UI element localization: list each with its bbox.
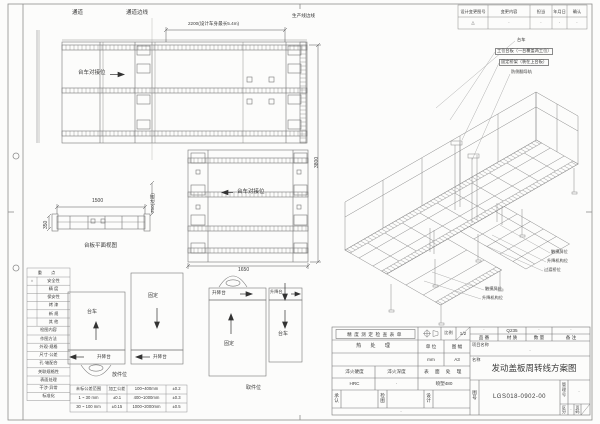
name-label: 名称 <box>472 358 480 363</box>
aisle-label: 通道 <box>72 10 83 16</box>
class-value: · <box>568 408 574 413</box>
tol-r2c2: ±0.1 <box>107 396 127 401</box>
dock-position-label-1: 台车对接位 <box>78 70 106 76</box>
part-no-label: 品 番 <box>470 335 498 340</box>
check-row-related-spec: 关联规格性 <box>27 370 70 375</box>
check-row-security: 保安性 <box>37 295 70 300</box>
mgmt-no-value: · <box>568 389 590 394</box>
check-row-surface: 表面处理 <box>27 378 70 383</box>
dimension-lines <box>47 27 321 269</box>
tol-r2c1: 1 ~ 30 mm <box>70 396 107 401</box>
material-label: 材 质 <box>498 335 526 340</box>
check-row-paint: 烤 漆 <box>37 303 70 308</box>
schematic-d-main-label: 台车 <box>278 332 288 338</box>
check-mark-1: ○ <box>27 279 37 284</box>
material-value: Q235 <box>498 328 526 333</box>
check-row-appearance: 外观·规格 <box>27 345 70 350</box>
callout-trolley: 台车 <box>517 38 525 43</box>
drawing-no-value: LGS018-0902-00 <box>480 394 559 401</box>
schematic-c-main-label: 固定 <box>224 342 234 348</box>
aisle-edge-label: 通道边线 <box>126 10 148 16</box>
revision-header-3: 担当 <box>530 10 552 15</box>
qty-label: 数 量 <box>526 335 552 340</box>
review-label: 检图 <box>380 393 386 404</box>
check-row-other: 其 他 <box>37 320 70 325</box>
revision-value-1: △ <box>458 21 488 26</box>
project-name-value: · <box>470 348 590 353</box>
approve-label: 承认 <box>334 393 340 404</box>
dim-750-label: 750(过道) <box>150 193 155 213</box>
revision-value-2: · <box>488 21 530 26</box>
tol-r2c3: 400~1000mm <box>127 396 166 401</box>
callout-touchscreen-2: 触摸屏位 <box>485 287 502 292</box>
drawing-no-label: 图号 <box>472 390 478 401</box>
revision-header-5: 确认 <box>567 10 587 15</box>
unit-value: mm <box>419 357 443 362</box>
station-left-label: 放件位 <box>112 373 127 379</box>
page-label: 页码 <box>575 406 580 416</box>
part-no-value: · <box>470 328 498 333</box>
callout-station-plate: 工位台板（一台覆盖两工位） <box>495 48 553 55</box>
check-row-new: 新 规 <box>37 312 70 317</box>
schematic-a-strip-label: 升降台 <box>97 354 111 359</box>
quench-hardness-value: HRC <box>334 381 375 386</box>
schematic-d-strip-label: 升降台 <box>270 290 283 295</box>
class-label: 区分 <box>562 406 567 416</box>
quench-hardness-label: 淬火硬度 <box>334 369 375 374</box>
check-row-hole-fit: 孔·轴配合 <box>27 361 70 366</box>
dim-1650-label: 1650 <box>238 268 249 274</box>
footer-value: · <box>332 409 470 414</box>
drawing-title: 发动盖板周转线方案图 <box>479 364 589 373</box>
revision-value-3: · <box>530 21 552 26</box>
check-sheet-label: 精度测定检查表单 <box>337 332 414 337</box>
tol-r3c3: 1000~2000mm <box>127 405 166 410</box>
sheet-size-label: 图 幅 <box>445 344 469 349</box>
remark-label: 备 注 <box>552 335 590 340</box>
dim-2200-label: 2200(设计车身最长5.4m) <box>188 21 239 26</box>
schematic-c-strip-label: 升降台 <box>212 290 226 295</box>
quench-depth-label: 淬火深度 <box>376 369 417 374</box>
dock-position-label-2: 台车对接位 <box>237 189 265 195</box>
scale-label: 比例 <box>441 331 456 336</box>
tol-r3c4: ±0.5 <box>166 405 187 410</box>
tol-r1c1: 未标公差范围 <box>70 387 107 392</box>
revision-header-4: 年月日 <box>552 10 567 15</box>
callout-fixed-bridge: 固定桥架（装在上台板） <box>499 59 549 66</box>
plan-view-top <box>37 18 307 160</box>
quench-depth-value: · <box>376 381 417 386</box>
revision-value-5: · <box>567 21 587 26</box>
dim-350-label: 350 <box>44 221 50 229</box>
iso-view <box>345 41 600 325</box>
callout-touchscreen-1: 触摸屏位 <box>551 250 568 255</box>
prod-edge-label: 生产线边线 <box>292 13 315 18</box>
sheet-size-value: A3 <box>445 357 469 362</box>
check-row-interference: 干涉·异常 <box>27 386 70 391</box>
tol-r3c1: 30 ~ 100 mm <box>70 405 107 410</box>
dim-3800-label: 3800 <box>315 157 321 168</box>
callout-transfer-bridge: 过渡桥位 <box>544 268 561 273</box>
callout-lift-mechanism-1: 升降机构位 <box>547 259 568 264</box>
tol-r1c4: ±0.2 <box>166 387 187 392</box>
revision-header-2: 变更内容 <box>488 10 530 15</box>
dim-1500-label: 1500 <box>92 199 103 205</box>
check-row-drawing-method: 作图方法 <box>27 337 70 342</box>
qty-value: · <box>526 328 552 333</box>
drawing-sheet: 通道 通道边线 2200(设计车身最长5.4m) 生产线边线 台车对接位 台车对… <box>0 0 600 424</box>
remark-value: · <box>552 328 590 333</box>
project-name-label: 项目名称 <box>472 343 489 348</box>
surface-treatment-label: 表 面 处 理 <box>419 369 469 374</box>
mgmt-no-label: 管理号 <box>562 383 567 397</box>
schematic-a-main-label: 台车 <box>87 310 97 316</box>
revision-header-1: 设计变更图号 <box>458 10 488 15</box>
schematic-b-main-label: 固定 <box>148 294 158 300</box>
check-header-2: 检图内容 <box>27 328 70 333</box>
check-row-precision: 精 度 <box>37 287 70 292</box>
check-row-standardization: 标准化 <box>27 394 70 399</box>
projection-symbol-icon <box>423 330 438 338</box>
check-header-1: 重 点 <box>27 271 70 276</box>
side-view-caption: 台板平面视图 <box>84 243 117 249</box>
surface-treatment-value: 喷塑480 <box>419 381 469 386</box>
plan-view-corner <box>188 150 308 262</box>
platform-side-view <box>52 214 150 231</box>
callout-lift-mechanism-2: 升降机构位 <box>482 296 503 301</box>
station-right-label: 取件位 <box>246 386 261 392</box>
unit-label: 单 位 <box>419 344 443 349</box>
tol-r2c4: ±0.3 <box>166 396 187 401</box>
design-label: 设计 <box>426 393 432 404</box>
heat-treatment-label: 热 处 理 <box>340 344 410 350</box>
check-row-safety: 安全性 <box>37 279 70 284</box>
schematic-b-strip-label: 升降台 <box>153 354 167 359</box>
tol-r1c3: 100~400mm <box>127 387 166 392</box>
revision-value-4: · <box>552 21 567 26</box>
tol-r1c2: 加工公差 <box>107 387 127 392</box>
check-row-dimension: 尺寸·公差 <box>27 353 70 358</box>
tol-r3c2: ±0.15 <box>107 405 127 410</box>
callout-anti-tip-rail: 防侧翻导轨 <box>511 70 532 75</box>
scale-value: 1/2 <box>456 331 470 336</box>
